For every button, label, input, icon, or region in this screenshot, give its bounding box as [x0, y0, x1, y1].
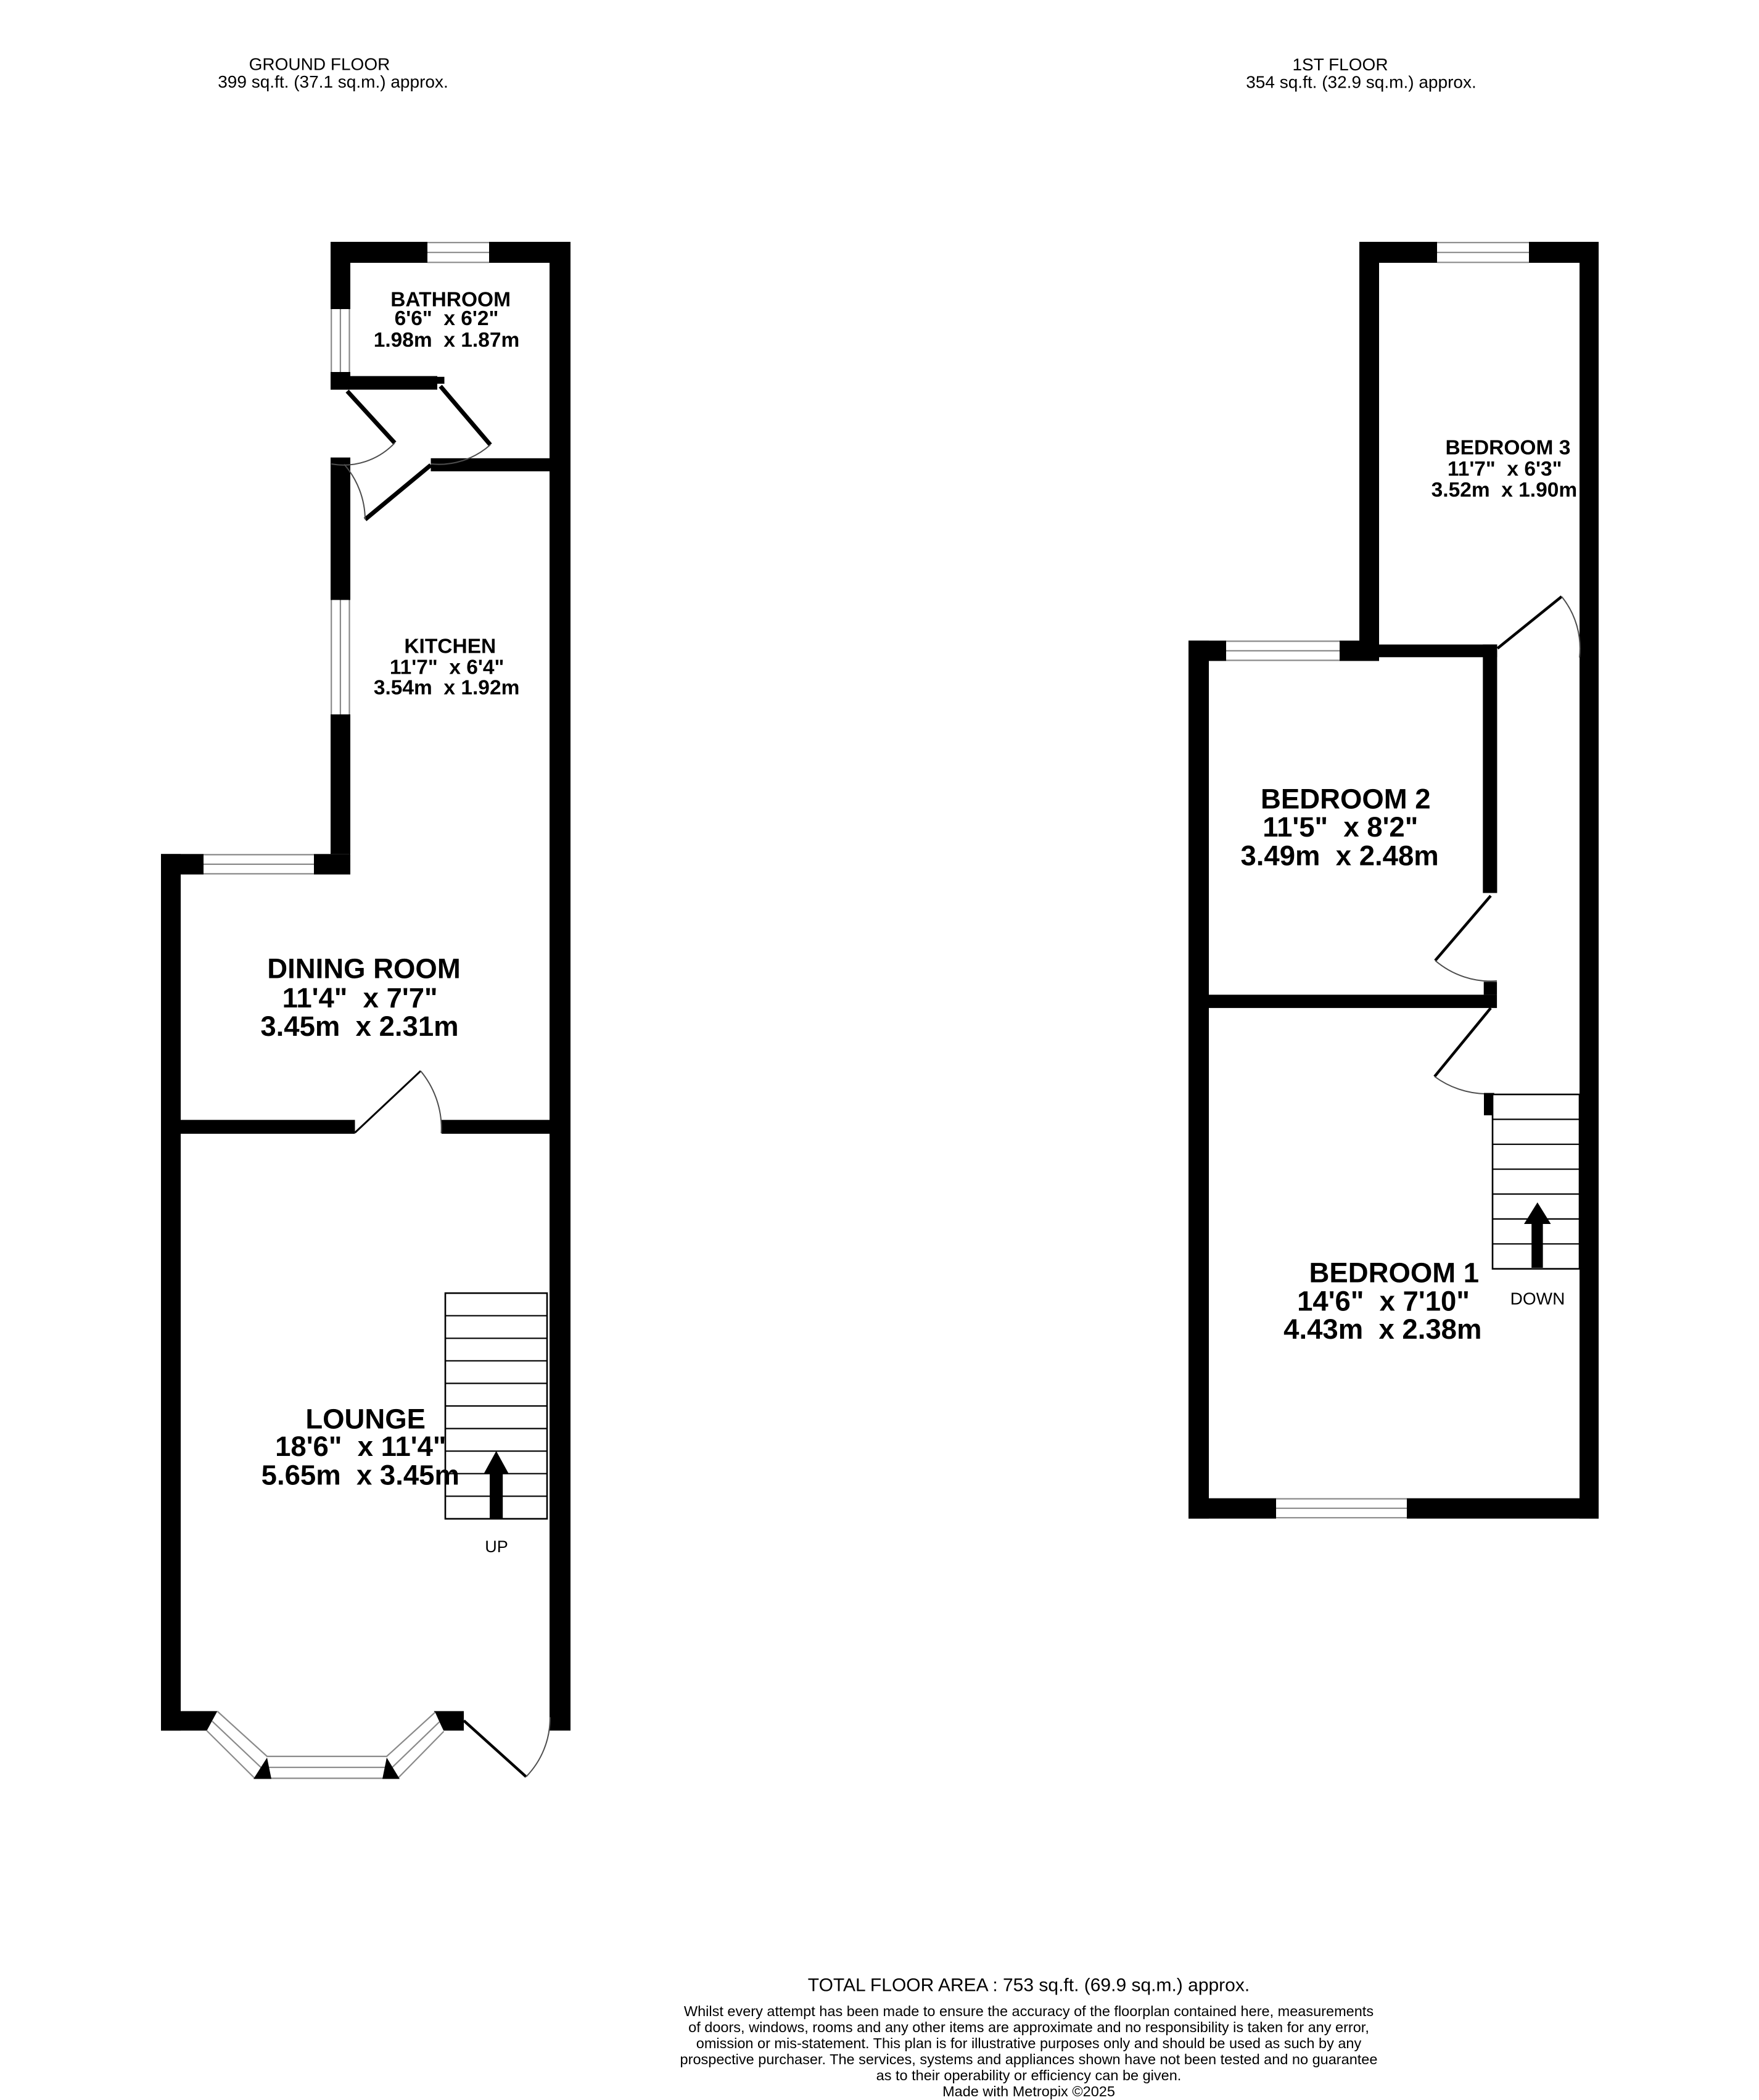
svg-text:11'7" x 6'3": 11'7" x 6'3" — [1448, 458, 1562, 481]
svg-text:3.49m x 2.48m: 3.49m x 2.48m — [1240, 840, 1438, 872]
svg-text:354 sq.ft. (32.9 sq.m.) approx: 354 sq.ft. (32.9 sq.m.) approx. — [1246, 72, 1477, 91]
svg-text:Whilst every attempt has been: Whilst every attempt has been made to en… — [684, 2003, 1374, 2019]
svg-text:BEDROOM 3: BEDROOM 3 — [1445, 437, 1570, 460]
svg-text:3.54m x 1.92m: 3.54m x 1.92m — [374, 677, 520, 700]
svg-text:3.45m x 2.31m: 3.45m x 2.31m — [260, 1011, 458, 1042]
svg-text:BEDROOM 1: BEDROOM 1 — [1309, 1257, 1480, 1288]
svg-text:5.65m x 3.45m: 5.65m x 3.45m — [262, 1459, 459, 1490]
svg-text:6'6" x 6'2": 6'6" x 6'2" — [395, 307, 499, 330]
svg-text:11'4" x 7'7": 11'4" x 7'7" — [282, 982, 438, 1014]
svg-text:14'6" x 7'10": 14'6" x 7'10" — [1297, 1286, 1470, 1317]
svg-text:399 sq.ft. (37.1 sq.m.) approx: 399 sq.ft. (37.1 sq.m.) approx. — [218, 72, 448, 91]
svg-text:KITCHEN: KITCHEN — [404, 635, 496, 658]
svg-text:UP: UP — [485, 1537, 508, 1556]
svg-text:TOTAL FLOOR AREA : 753 sq.ft.: TOTAL FLOOR AREA : 753 sq.ft. (69.9 sq.m… — [808, 1975, 1250, 1995]
svg-text:4.43m x 2.38m: 4.43m x 2.38m — [1283, 1313, 1481, 1345]
svg-text:18'6" x 11'4": 18'6" x 11'4" — [275, 1431, 446, 1462]
svg-text:of doors, windows, rooms and a: of doors, windows, rooms and any other i… — [688, 2019, 1369, 2035]
svg-text:1ST FLOOR: 1ST FLOOR — [1292, 55, 1388, 74]
svg-text:as to their operability or eff: as to their operability or efficiency ca… — [876, 2067, 1182, 2083]
svg-text:11'7" x 6'4": 11'7" x 6'4" — [390, 656, 505, 679]
svg-text:3.52m x 1.90m: 3.52m x 1.90m — [1432, 479, 1578, 502]
svg-text:DOWN: DOWN — [1510, 1289, 1565, 1308]
svg-text:omission or mis-statement. Thi: omission or mis-statement. This plan is … — [696, 2035, 1362, 2051]
svg-text:BEDROOM 2: BEDROOM 2 — [1261, 783, 1431, 815]
svg-text:prospective purchaser. The ser: prospective purchaser. The services, sys… — [680, 2051, 1378, 2067]
svg-text:Made with Metropix ©2025: Made with Metropix ©2025 — [942, 2083, 1115, 2099]
svg-text:11'5" x 8'2": 11'5" x 8'2" — [1263, 811, 1418, 843]
svg-text:GROUND FLOOR: GROUND FLOOR — [249, 54, 390, 73]
svg-text:1.98m x 1.87m: 1.98m x 1.87m — [374, 329, 520, 352]
svg-text:DINING ROOM: DINING ROOM — [267, 953, 460, 985]
